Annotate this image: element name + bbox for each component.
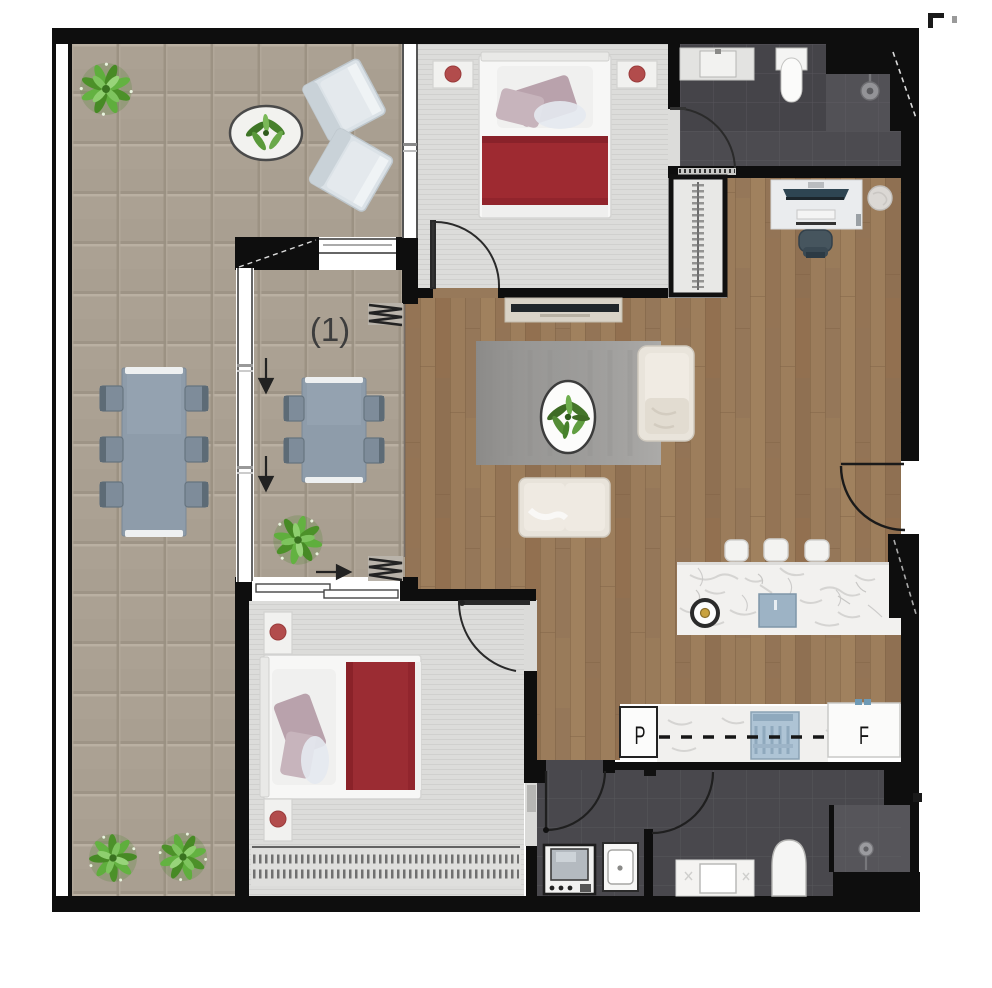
svg-text:(1): (1): [310, 311, 350, 348]
svg-text:F: F: [859, 722, 869, 750]
svg-text:P: P: [635, 722, 646, 750]
